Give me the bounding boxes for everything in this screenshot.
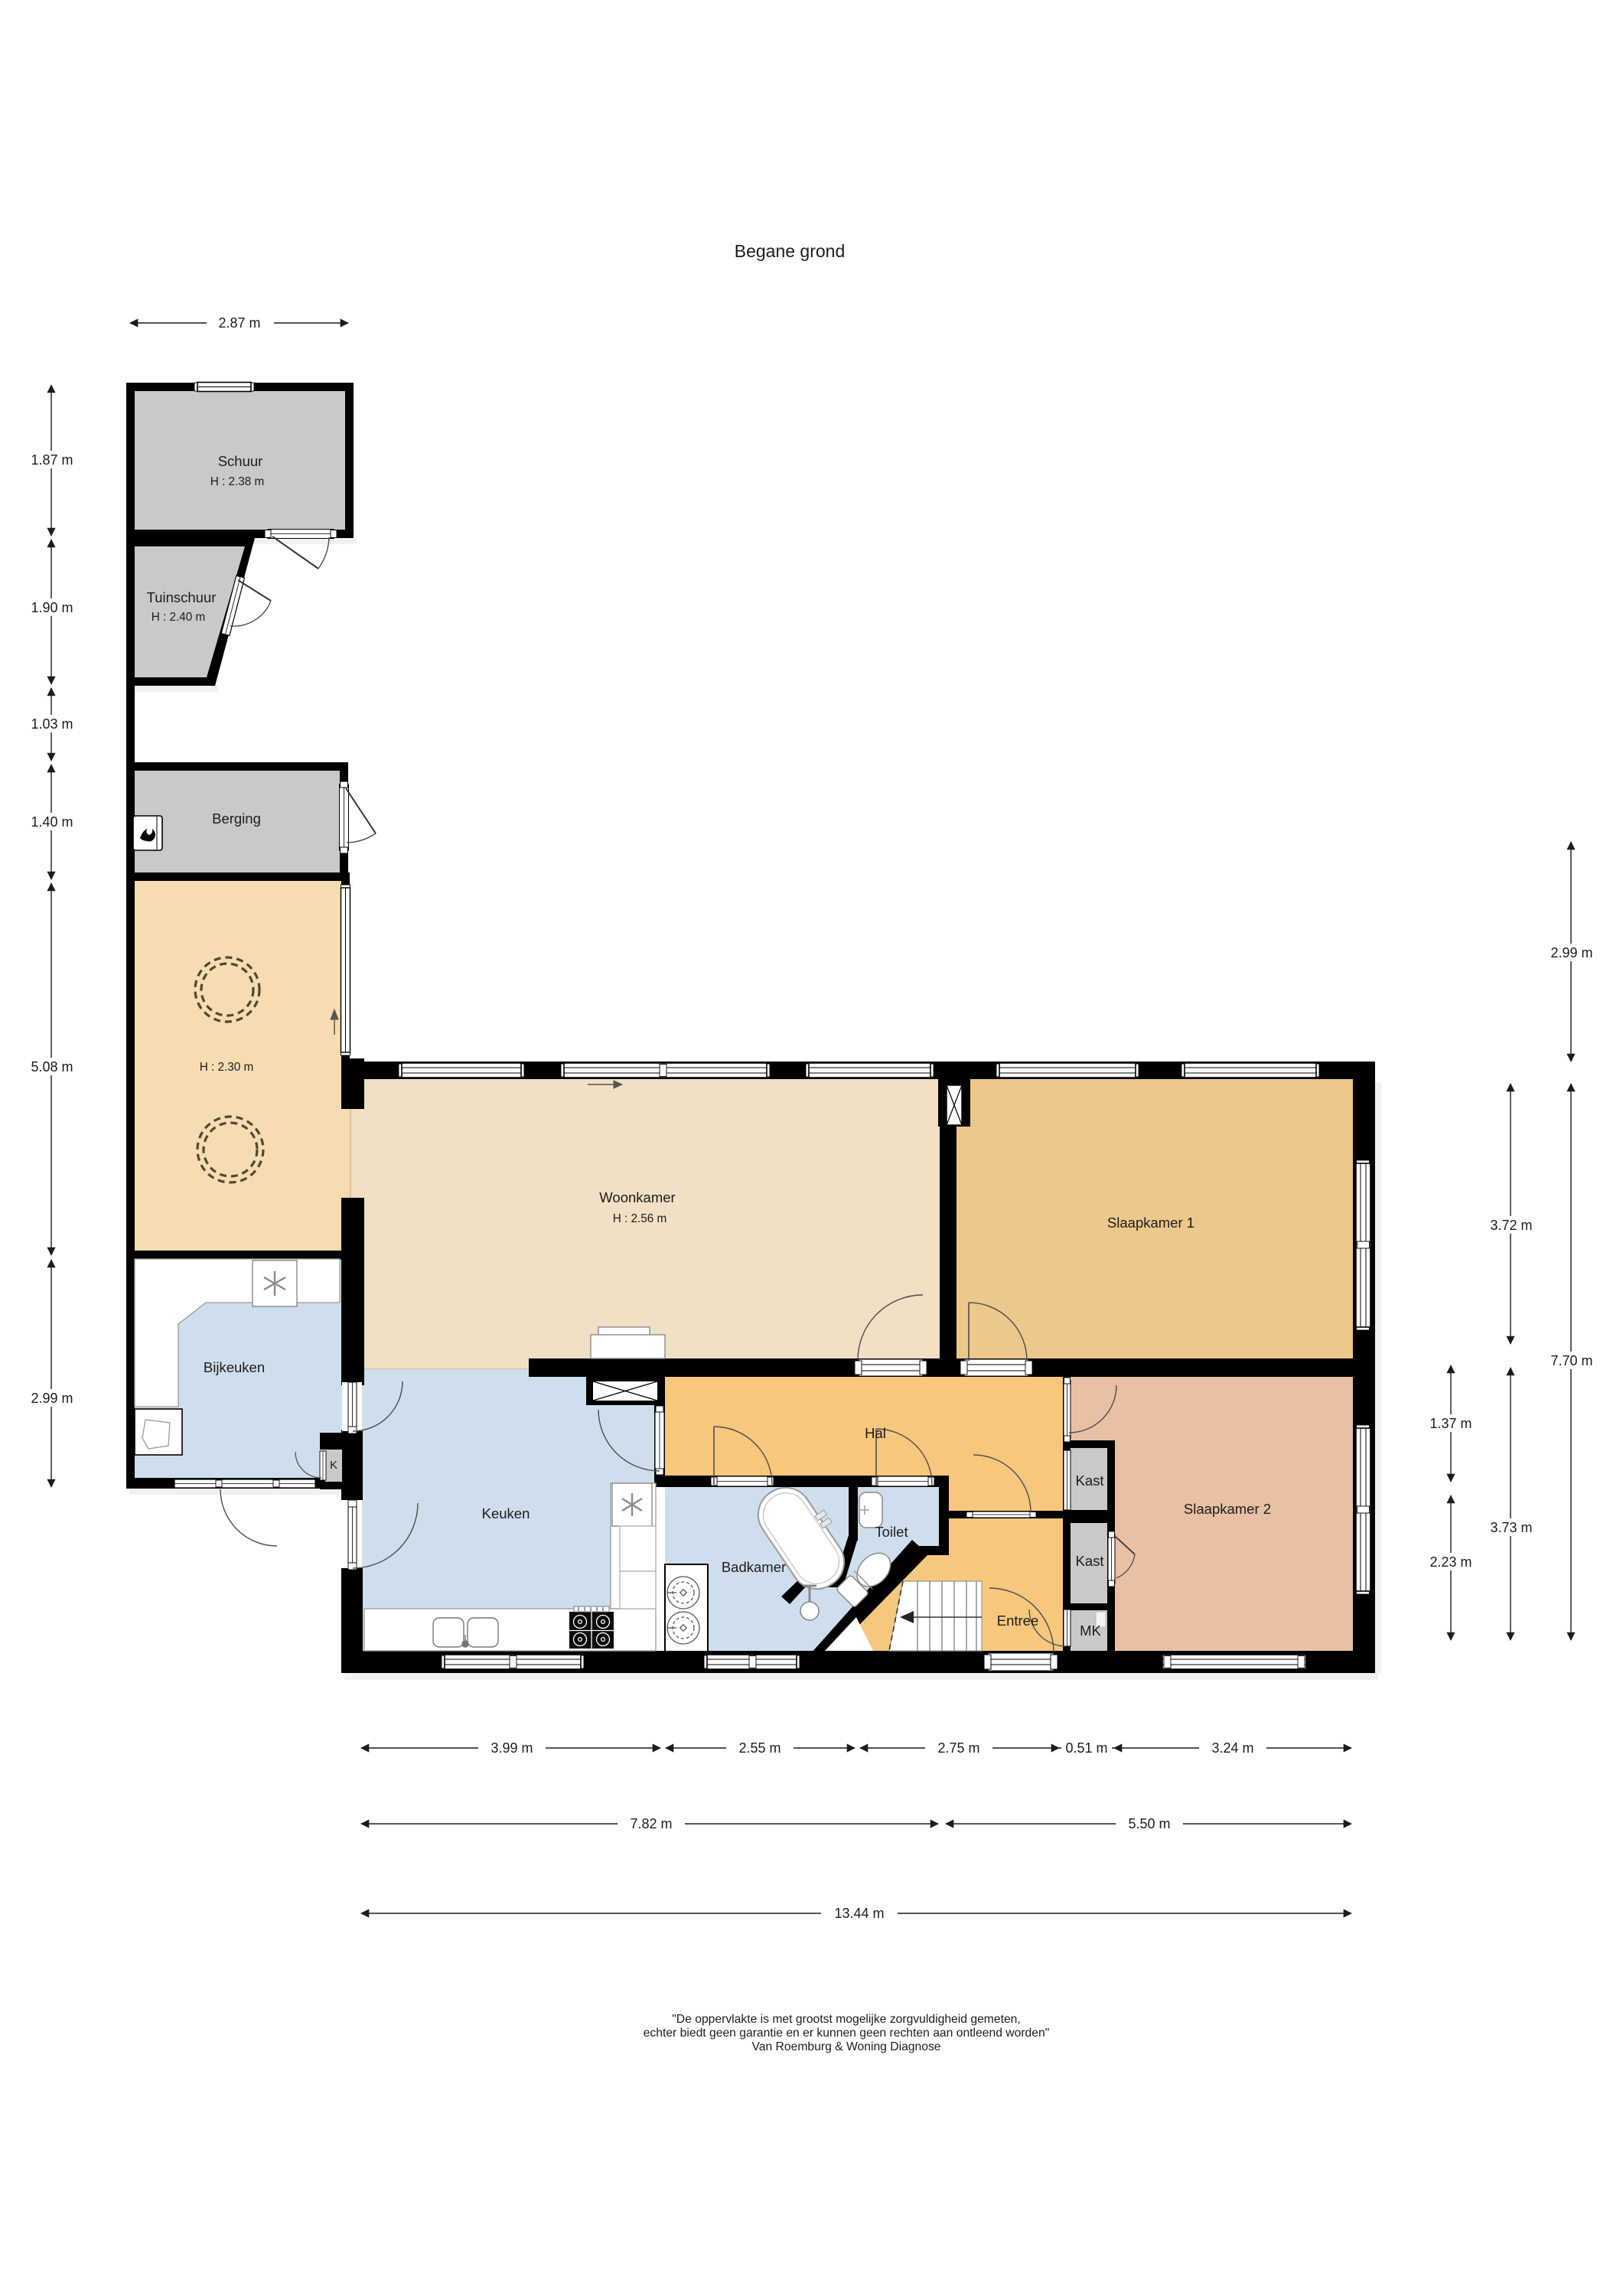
svg-text:H : 2.30 m: H : 2.30 m [200, 1061, 254, 1074]
svg-text:1.90 m: 1.90 m [31, 600, 73, 615]
svg-text:Hal: Hal [865, 1425, 886, 1441]
svg-text:2.23 m: 2.23 m [1429, 1554, 1471, 1570]
svg-text:MK: MK [1080, 1623, 1101, 1639]
svg-text:Bijkeuken: Bijkeuken [204, 1359, 265, 1375]
svg-text:1.03 m: 1.03 m [31, 716, 73, 732]
svg-text:3.72 m: 3.72 m [1490, 1218, 1532, 1233]
svg-text:3.24 m: 3.24 m [1211, 1740, 1253, 1756]
svg-text:2.99 m: 2.99 m [31, 1391, 73, 1406]
svg-text:H : 2.40 m: H : 2.40 m [152, 611, 206, 624]
svg-text:Woonkamer: Woonkamer [599, 1189, 675, 1205]
svg-text:7.82 m: 7.82 m [630, 1816, 672, 1831]
svg-text:2.87 m: 2.87 m [218, 315, 260, 331]
svg-text:3.99 m: 3.99 m [490, 1740, 533, 1756]
svg-text:Begane grond: Begane grond [735, 241, 846, 261]
svg-text:1.40 m: 1.40 m [31, 814, 73, 830]
svg-text:2.75 m: 2.75 m [937, 1740, 979, 1756]
svg-text:Berging: Berging [212, 810, 261, 827]
svg-text:Badkamer: Badkamer [722, 1559, 786, 1575]
svg-text:Van Roemburg & Woning Diagnose: Van Roemburg & Woning Diagnose [751, 2040, 940, 2053]
svg-text:Slaapkamer 1: Slaapkamer 1 [1107, 1215, 1194, 1231]
svg-text:Tuinschuur: Tuinschuur [147, 589, 217, 605]
svg-text:K: K [330, 1459, 337, 1472]
svg-text:1.37 m: 1.37 m [1429, 1416, 1471, 1431]
svg-text:5.08 m: 5.08 m [31, 1059, 73, 1075]
svg-text:7.70 m: 7.70 m [1550, 1353, 1592, 1368]
svg-text:Entree: Entree [997, 1613, 1039, 1629]
svg-text:1.87 m: 1.87 m [31, 452, 73, 468]
svg-text:H : 2.38 m: H : 2.38 m [210, 475, 265, 488]
svg-text:0.51 m: 0.51 m [1065, 1740, 1107, 1756]
svg-text:Kast: Kast [1075, 1473, 1103, 1489]
svg-text:echter biedt geen garantie en: echter biedt geen garantie en er kunnen … [644, 2027, 1050, 2040]
svg-text:Schuur: Schuur [218, 453, 263, 469]
svg-text:2.55 m: 2.55 m [738, 1740, 781, 1756]
svg-text:3.73 m: 3.73 m [1490, 1520, 1532, 1535]
svg-text:13.44 m: 13.44 m [834, 1906, 884, 1921]
svg-text:H : 2.56 m: H : 2.56 m [613, 1212, 667, 1225]
svg-text:Keuken: Keuken [482, 1505, 530, 1521]
svg-text:Toilet: Toilet [875, 1524, 908, 1540]
svg-text:2.99 m: 2.99 m [1550, 945, 1592, 960]
svg-text:5.50 m: 5.50 m [1128, 1816, 1170, 1831]
svg-text:Kast: Kast [1075, 1553, 1103, 1569]
svg-text:"De oppervlakte is met grootst: "De oppervlakte is met grootst mogelijke… [672, 2013, 1021, 2026]
svg-text:Slaapkamer 2: Slaapkamer 2 [1184, 1501, 1271, 1517]
